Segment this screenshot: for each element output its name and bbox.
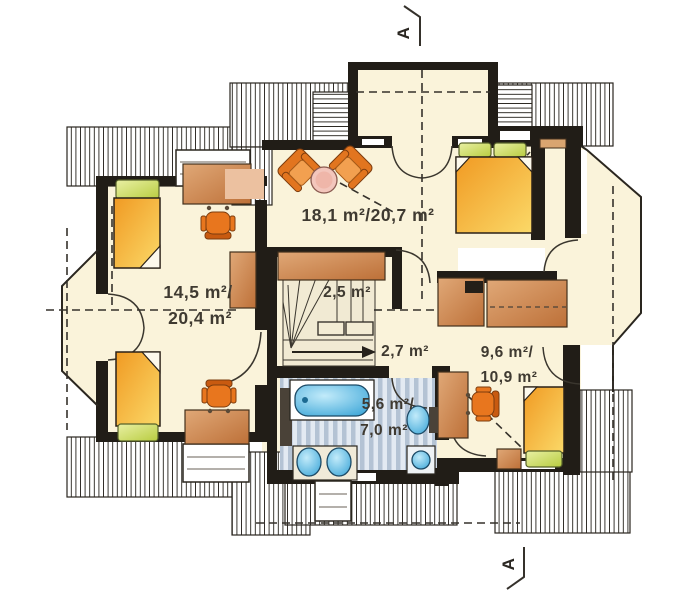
nightstand-symbol — [497, 449, 521, 469]
bed-symbol — [114, 180, 160, 268]
floor-plan-svg: 18,1 m²/20,7 m² 14,5 m²/ 20,4 m² 2,5 m² … — [0, 0, 700, 614]
room-label-master: 18,1 m²/20,7 m² — [302, 205, 435, 225]
wardrobe-symbol — [487, 280, 567, 327]
bed-symbol — [116, 352, 160, 441]
desk-symbol — [438, 372, 468, 438]
dresser-symbol — [438, 278, 484, 326]
sill-symbol — [540, 139, 566, 148]
room-label-bath-line1: 5,6 m²/ — [362, 396, 415, 413]
desk-symbol — [183, 164, 264, 204]
room-label-right-line1: 9,6 m²/ — [481, 344, 534, 361]
shelf-symbol — [230, 252, 256, 308]
window-icon — [362, 139, 384, 145]
roof-hatch-right — [580, 390, 632, 472]
skylight-icon — [313, 92, 350, 144]
sink-symbol — [293, 446, 357, 480]
coffee-table-symbol — [311, 167, 337, 193]
roof-hatch-bottom-mid — [285, 482, 457, 525]
section-marker-letter: A — [499, 558, 518, 571]
section-marker-letter: A — [394, 27, 413, 40]
desk-symbol — [185, 410, 249, 444]
washing-machine-symbol — [407, 446, 435, 474]
room-label-left-line2: 20,4 m² — [168, 308, 232, 328]
room-label-stairs: 2,5 m² — [323, 284, 371, 301]
wardrobe-symbol — [278, 252, 385, 280]
bed-symbol — [524, 387, 564, 467]
room-label-hall: 2,7 m² — [381, 343, 429, 360]
window-icon — [581, 150, 587, 234]
room-label-right-line2: 10,9 m² — [481, 369, 538, 386]
dormer-window-icon — [315, 481, 351, 521]
bed-symbol — [456, 143, 532, 233]
dormer-window-icon — [183, 444, 249, 482]
room-label-bath-line2: 7,0 m² — [360, 422, 408, 439]
roof-hatch-bottom-right — [495, 470, 630, 533]
floor-plan-page: 18,1 m²/20,7 m² 14,5 m²/ 20,4 m² 2,5 m² … — [0, 0, 700, 614]
room-label-left-line1: 14,5 m²/ — [163, 282, 232, 302]
window-icon — [500, 131, 530, 140]
